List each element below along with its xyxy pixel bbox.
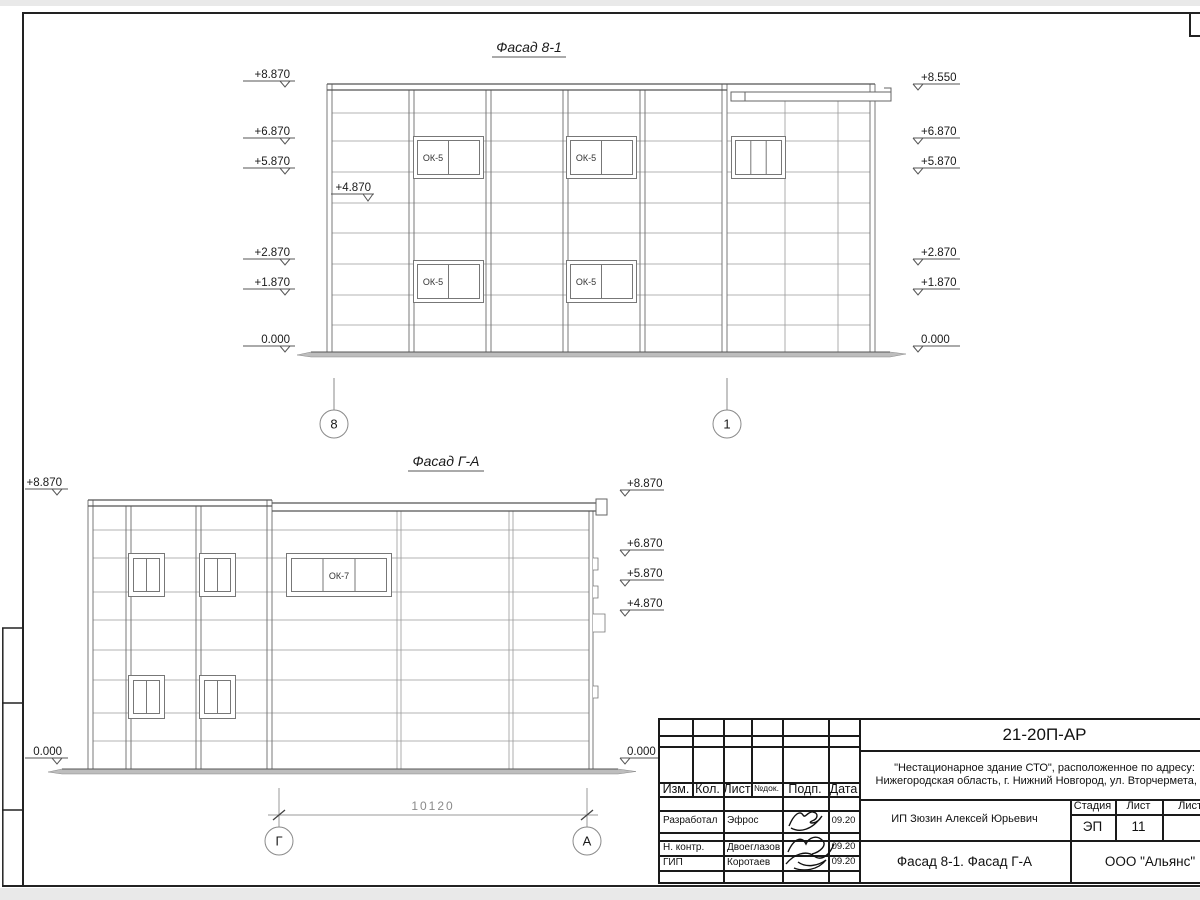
svg-text:+5.870: +5.870 bbox=[921, 156, 957, 168]
ground-line bbox=[297, 352, 906, 357]
svg-text:Г: Г bbox=[275, 834, 282, 849]
svg-text:+1.870: +1.870 bbox=[255, 277, 291, 289]
tb-sheet-value: 11 bbox=[1115, 814, 1162, 840]
ground-line bbox=[48, 769, 636, 774]
svg-text:0.000: 0.000 bbox=[921, 334, 950, 346]
tb-line bbox=[660, 735, 859, 737]
svg-text:А: А bbox=[583, 834, 592, 849]
tb-document-code: 21-20П-АР bbox=[859, 720, 1200, 750]
svg-text:8: 8 bbox=[330, 417, 337, 432]
svg-text:+6.870: +6.870 bbox=[255, 126, 291, 138]
tb-col-izm: Изм. bbox=[660, 782, 692, 796]
window-label-ok5: ОК-5 bbox=[423, 277, 443, 287]
tb-date: 09.20 bbox=[828, 810, 859, 832]
tb-client: ИП Зюзин Алексей Юрьевич bbox=[859, 799, 1070, 840]
svg-text:1: 1 bbox=[723, 417, 730, 432]
svg-text:+4.870: +4.870 bbox=[336, 182, 372, 194]
svg-text:+5.870: +5.870 bbox=[255, 156, 291, 168]
tb-col-kol: Кол. bbox=[692, 782, 723, 796]
tb-sheet-label: Лист bbox=[1115, 799, 1162, 814]
window-label-ok5: ОК-5 bbox=[576, 277, 596, 287]
tb-project-line2: Нижегородская область, г. Нижний Новгоро… bbox=[876, 775, 1200, 788]
svg-text:0.000: 0.000 bbox=[261, 334, 290, 346]
tb-role: Н. контр. bbox=[663, 840, 723, 855]
svg-text:+8.550: +8.550 bbox=[921, 72, 957, 84]
tb-sheets-label: Листов bbox=[1162, 799, 1200, 814]
drawing-sheet: Фасад 8-1 ОК-5 ОК-5 ОК-5 ОК-5 +8.870 +6.… bbox=[0, 0, 1200, 900]
dimension-value: 10120 bbox=[411, 799, 454, 813]
svg-text:+5.870: +5.870 bbox=[627, 568, 663, 580]
roof-end-cap bbox=[596, 499, 607, 515]
svg-text:+8.870: +8.870 bbox=[27, 477, 63, 489]
signature bbox=[786, 806, 828, 834]
svg-text:+8.870: +8.870 bbox=[627, 478, 663, 490]
window-label-ok5: ОК-5 bbox=[423, 153, 443, 163]
facade-8-1-title: Фасад 8-1 bbox=[496, 39, 562, 55]
svg-text:+2.870: +2.870 bbox=[921, 247, 957, 259]
svg-text:+6.870: +6.870 bbox=[627, 538, 663, 550]
svg-text:+4.870: +4.870 bbox=[627, 598, 663, 610]
tb-stage-value: ЭП bbox=[1070, 814, 1115, 840]
signature bbox=[782, 832, 838, 874]
facade-g-a-title: Фасад Г-А bbox=[413, 453, 480, 469]
svg-text:+1.870: +1.870 bbox=[921, 277, 957, 289]
svg-text:+6.870: +6.870 bbox=[921, 126, 957, 138]
tb-col-ndok: №док. bbox=[751, 782, 782, 796]
tb-line bbox=[723, 720, 725, 884]
tb-line bbox=[660, 746, 859, 748]
title-block: Изм. Кол. Лист №док. Подп. Дата Разработ… bbox=[658, 718, 1200, 884]
tb-name: Двоеглазов bbox=[727, 840, 782, 855]
tb-name: Эфрос bbox=[727, 810, 782, 832]
tb-doc-title: Фасад 8-1. Фасад Г-А bbox=[859, 840, 1070, 884]
tb-project: "Нестационарное здание СТО", расположенн… bbox=[859, 750, 1200, 799]
tb-col-list: Лист bbox=[723, 782, 751, 796]
tb-company: ООО "Альянс" bbox=[1070, 840, 1200, 884]
tb-stage-label: Стадия bbox=[1070, 799, 1115, 814]
tb-name: Коротаев bbox=[727, 855, 782, 870]
window-label-ok5: ОК-5 bbox=[576, 153, 596, 163]
tb-line bbox=[660, 796, 859, 798]
tb-col-data: Дата bbox=[828, 782, 859, 796]
window-label-ok7: ОК-7 bbox=[329, 571, 349, 581]
tb-col-podp: Подп. bbox=[782, 782, 828, 796]
svg-text:0.000: 0.000 bbox=[627, 746, 656, 758]
tb-project-line1: "Нестационарное здание СТО", расположенн… bbox=[894, 762, 1195, 775]
tb-role: ГИП bbox=[663, 855, 723, 870]
svg-text:0.000: 0.000 bbox=[33, 746, 62, 758]
tb-role: Разработал bbox=[663, 810, 723, 832]
svg-text:+8.870: +8.870 bbox=[255, 69, 291, 81]
svg-text:+2.870: +2.870 bbox=[255, 247, 291, 259]
